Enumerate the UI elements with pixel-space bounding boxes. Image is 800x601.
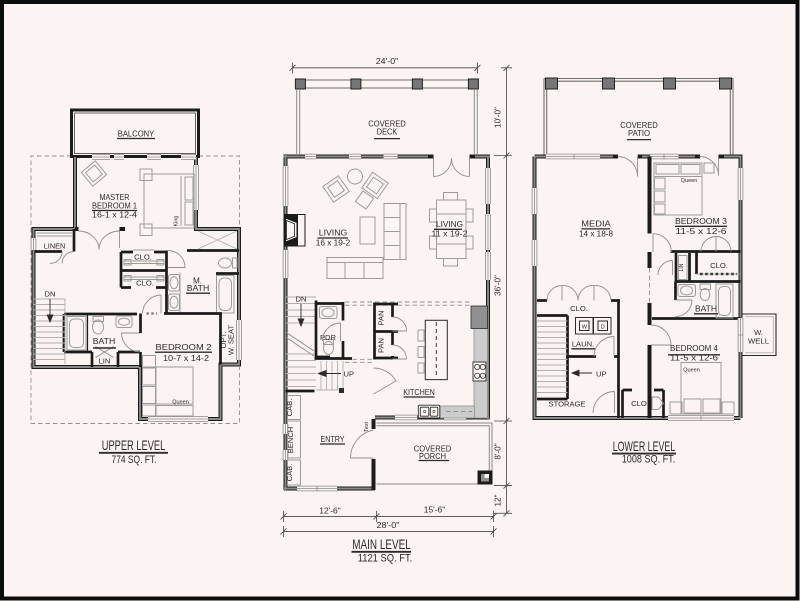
svg-text:UP: UP [344,370,355,379]
svg-text:BEDROOM 1: BEDROOM 1 [92,201,137,210]
svg-text:12": 12" [494,494,503,506]
svg-text:DECK: DECK [377,128,398,137]
svg-text:14 x 18-8: 14 x 18-8 [579,230,613,239]
svg-text:LIN: LIN [99,357,111,366]
svg-text:W: W [582,325,588,331]
svg-text:1121 SQ. FT.: 1121 SQ. FT. [358,553,413,565]
svg-text:BATH: BATH [695,305,717,314]
svg-text:15'-6": 15'-6" [424,506,446,515]
svg-text:10'-0": 10'-0" [494,107,503,128]
svg-text:774 SQ. FT.: 774 SQ. FT. [112,454,157,466]
svg-text:BALCONY: BALCONY [118,130,155,139]
svg-text:W. SEAT: W. SEAT [227,325,236,356]
svg-text:DN: DN [296,295,307,304]
svg-text:CLO.: CLO. [134,252,152,261]
svg-text:28'-0": 28'-0" [377,521,400,530]
svg-text:STORAGE: STORAGE [549,400,586,409]
svg-text:Text: Text [364,421,370,432]
svg-text:PORCH: PORCH [419,452,446,461]
svg-text:Queen: Queen [172,400,189,406]
svg-text:12'-6": 12'-6" [319,507,341,516]
svg-text:8'-0": 8'-0" [494,443,503,459]
svg-text:CLO.: CLO. [631,399,649,408]
svg-text:BEDROOM 4: BEDROOM 4 [670,344,718,353]
svg-text:CAB.: CAB. [285,399,294,417]
svg-text:PAN: PAN [377,310,386,325]
svg-text:36'-0": 36'-0" [494,275,503,296]
svg-text:11 x 19-2: 11 x 19-2 [432,230,468,239]
svg-text:LIVING: LIVING [319,228,348,237]
svg-text:WELL: WELL [748,336,769,345]
svg-text:BENCH: BENCH [286,427,295,454]
svg-text:Queen: Queen [681,178,698,184]
svg-text:LOWER LEVEL: LOWER LEVEL [613,439,676,454]
svg-text:16 x 19-2: 16 x 19-2 [316,238,351,247]
svg-text:MEDIA: MEDIA [581,220,611,229]
svg-text:ENTRY: ENTRY [321,435,345,444]
svg-text:CLO.: CLO. [136,278,154,287]
svg-text:24'-0": 24'-0" [376,57,399,66]
svg-text:BEDROOM 2: BEDROOM 2 [156,343,213,352]
svg-text:MAIN LEVEL: MAIN LEVEL [352,537,411,552]
svg-text:CLO.: CLO. [710,261,728,270]
svg-text:16-1 x 12-4: 16-1 x 12-4 [92,210,137,219]
svg-text:PAN: PAN [377,338,386,353]
svg-text:BEDROOM 3: BEDROOM 3 [675,217,727,226]
svg-text:PATIO: PATIO [628,129,650,138]
svg-text:CLO.: CLO. [570,304,588,313]
svg-text:BATH: BATH [93,337,116,346]
svg-text:1008 SQ. FT.: 1008 SQ. FT. [622,454,676,466]
svg-text:KITCHEN: KITCHEN [403,388,435,397]
svg-text:UP: UP [596,370,607,379]
svg-text:LINEN: LINEN [44,242,66,251]
svg-text:LIN: LIN [679,263,685,271]
svg-text:LAUN.: LAUN. [572,340,594,349]
svg-text:11-5 x 12-6: 11-5 x 12-6 [676,227,728,236]
svg-text:11-5 x 12-6: 11-5 x 12-6 [670,354,719,363]
svg-text:LIVING: LIVING [436,220,463,229]
svg-text:BATH: BATH [187,284,210,293]
svg-text:D: D [601,325,605,331]
svg-text:Queen: Queen [683,367,700,373]
svg-text:DN: DN [45,290,56,299]
svg-text:10-7 x 14-2: 10-7 x 14-2 [163,354,209,363]
svg-text:King: King [174,215,180,226]
svg-text:UPPER LEVEL: UPPER LEVEL [102,438,166,453]
svg-text:CAB.: CAB. [285,464,294,482]
